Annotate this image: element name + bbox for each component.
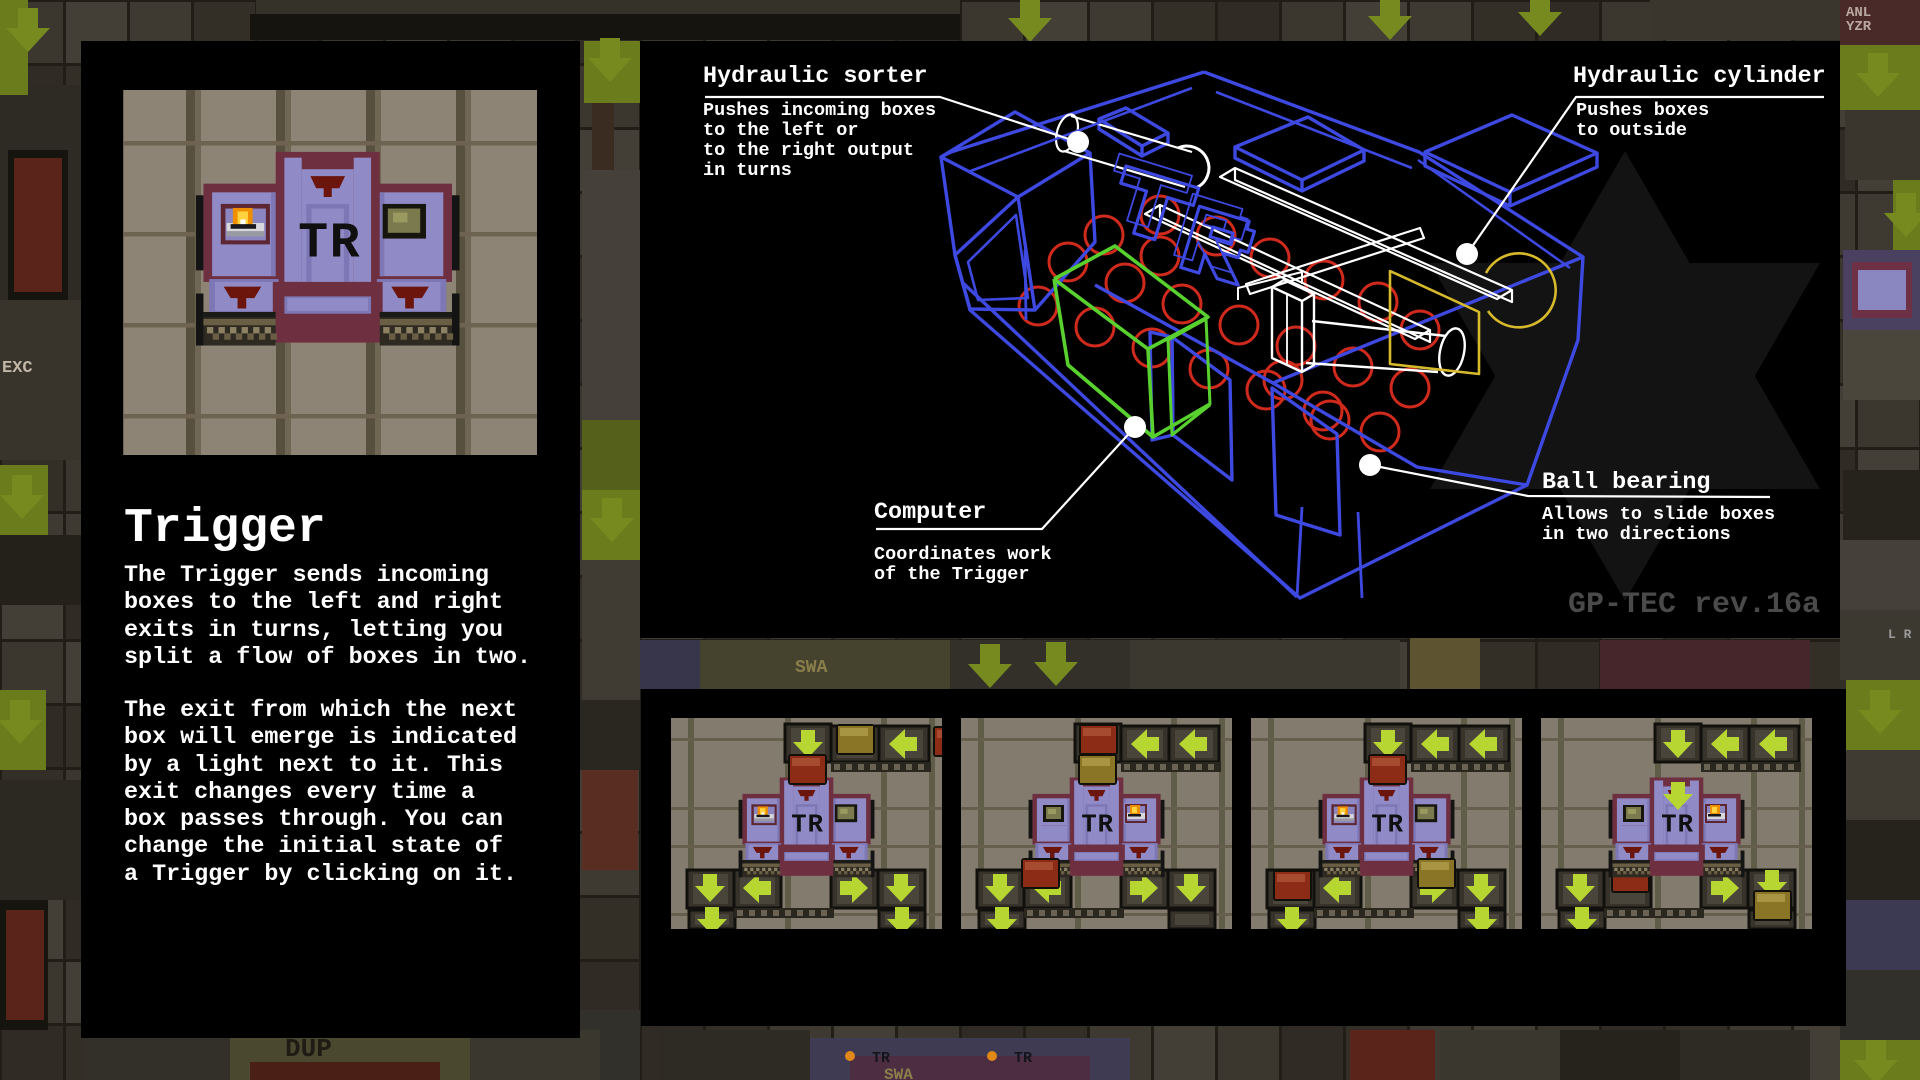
svg-text:L R: L R bbox=[1888, 627, 1912, 642]
svg-text:SWA: SWA bbox=[884, 1066, 913, 1080]
svg-text:DUP: DUP bbox=[285, 1034, 332, 1064]
svg-text:YZR: YZR bbox=[1846, 19, 1872, 35]
svg-text:TR: TR bbox=[1014, 1050, 1032, 1067]
svg-text:EXC: EXC bbox=[2, 359, 33, 378]
svg-text:TR: TR bbox=[872, 1050, 890, 1067]
svg-text:SWA: SWA bbox=[795, 658, 828, 678]
